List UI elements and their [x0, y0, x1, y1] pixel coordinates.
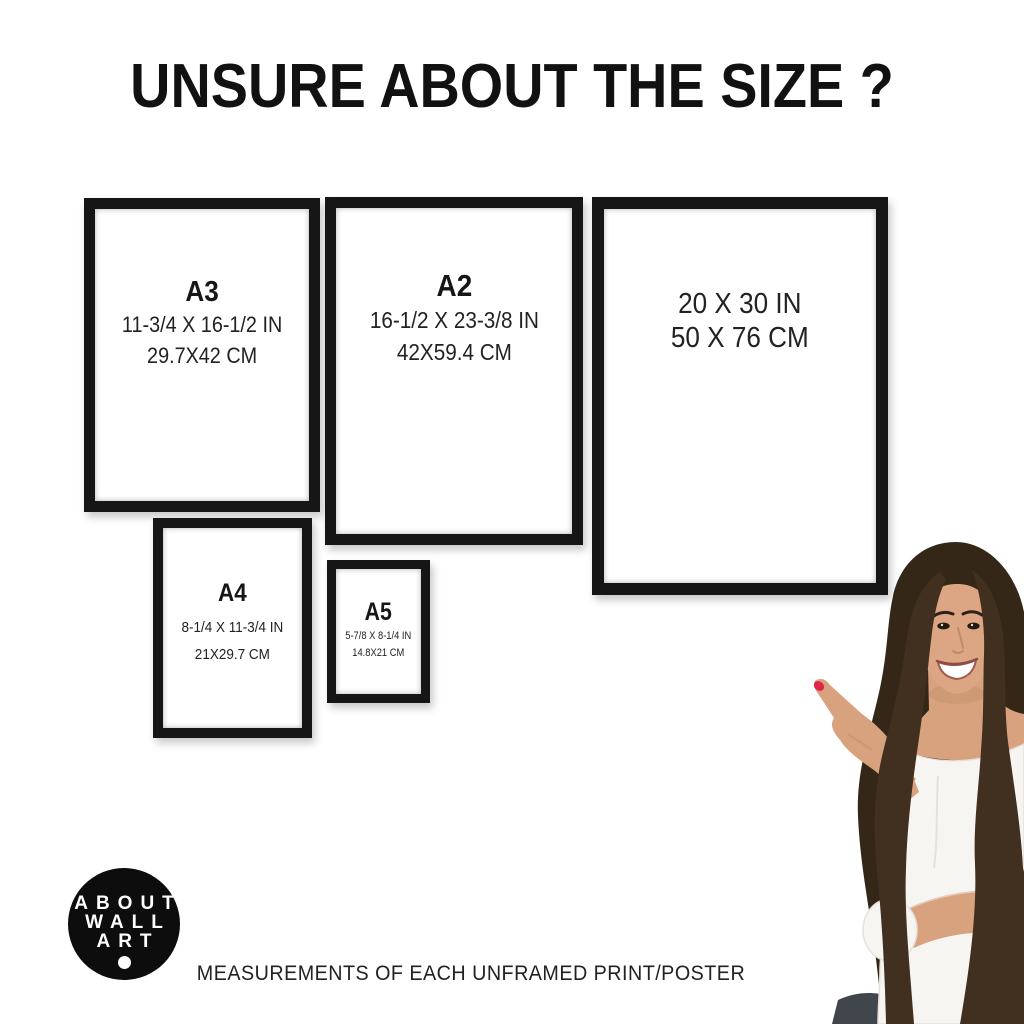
brand-logo-line: ABOUT [66, 894, 182, 913]
frame-a4: A4 8-1/4 X 11-3/4 IN 21X29.7 CM [153, 518, 312, 738]
size-cm: 50 X 76 CM [581, 321, 899, 355]
size-inches: 20 X 30 IN [581, 287, 899, 321]
size-inches: 11-3/4 X 16-1/2 IN [77, 309, 327, 340]
brand-logo-line: ART [88, 932, 159, 951]
frame-a2-text: A2 16-1/2 X 23-3/8 IN 42X59.4 CM [316, 268, 592, 368]
size-name: A5 [332, 598, 426, 626]
brand-logo-line: WALL [77, 913, 171, 932]
frame-20x30-text: 20 X 30 IN 50 X 76 CM [581, 287, 899, 355]
size-name: A3 [77, 275, 327, 309]
size-cm: 21X29.7 CM [151, 641, 314, 668]
frame-20x30-print: 20 X 30 IN 50 X 76 CM [604, 209, 876, 583]
frame-a2: A2 16-1/2 X 23-3/8 IN 42X59.4 CM [325, 197, 583, 545]
frame-a3-print: A3 11-3/4 X 16-1/2 IN 29.7X42 CM [95, 209, 309, 501]
footer-caption: MEASUREMENTS OF EACH UNFRAMED PRINT/POST… [28, 962, 913, 986]
size-cm: 42X59.4 CM [316, 336, 592, 368]
frame-a5-text: A5 5-7/8 X 8-1/4 IN 14.8X21 CM [332, 598, 426, 662]
woman-pointing-illustration [788, 538, 1024, 1024]
size-guide-graphic: UNSURE ABOUT THE SIZE ? A3 11-3/4 X 16-1… [0, 0, 1024, 1024]
woman-pointing-photo [788, 538, 1024, 1024]
frame-20x30: 20 X 30 IN 50 X 76 CM [592, 197, 888, 595]
frame-a2-print: A2 16-1/2 X 23-3/8 IN 42X59.4 CM [336, 208, 572, 534]
frame-a5-print: A5 5-7/8 X 8-1/4 IN 14.8X21 CM [336, 569, 421, 694]
frame-a5: A5 5-7/8 X 8-1/4 IN 14.8X21 CM [327, 560, 430, 703]
size-name: A2 [316, 268, 592, 304]
size-inches: 16-1/2 X 23-3/8 IN [316, 304, 592, 336]
size-cm: 29.7X42 CM [77, 340, 327, 371]
size-inches: 8-1/4 X 11-3/4 IN [151, 614, 314, 641]
size-name: A4 [151, 578, 314, 608]
frame-a4-print: A4 8-1/4 X 11-3/4 IN 21X29.7 CM [163, 528, 302, 728]
frame-a4-text: A4 8-1/4 X 11-3/4 IN 21X29.7 CM [151, 578, 314, 668]
frame-a3: A3 11-3/4 X 16-1/2 IN 29.7X42 CM [84, 198, 320, 512]
page-title: UNSURE ABOUT THE SIZE ? [84, 56, 941, 118]
frame-a3-text: A3 11-3/4 X 16-1/2 IN 29.7X42 CM [77, 275, 327, 371]
size-inches: 5-7/8 X 8-1/4 IN [332, 628, 426, 645]
size-cm: 14.8X21 CM [332, 645, 426, 662]
